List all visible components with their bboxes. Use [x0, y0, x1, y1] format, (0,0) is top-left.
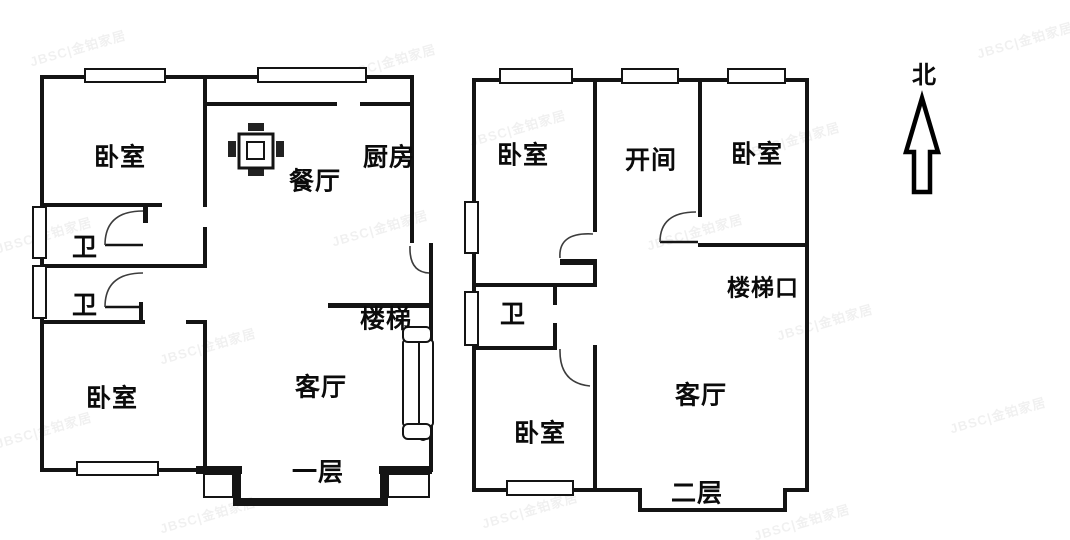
window [258, 68, 366, 82]
floor1-windows [33, 68, 429, 497]
room-label-dining: 餐厅 [289, 170, 341, 195]
floor1-doors [105, 211, 429, 307]
dining-table-icon [228, 123, 284, 176]
floor-label-1f: 一层 [292, 461, 344, 486]
room-label-bath-2: 卫 [72, 294, 98, 319]
room-label-bedroom: 卧室 [497, 144, 549, 169]
floor2-doors [560, 212, 698, 386]
door-arc [105, 211, 143, 245]
door-arc [105, 273, 143, 307]
room-label-bath-1: 卫 [72, 236, 98, 261]
room-label-bath: 卫 [500, 303, 526, 328]
floor-label-2f: 二层 [671, 482, 723, 507]
room-label-bedroom: 卧室 [94, 146, 146, 171]
room-label-bedroom: 卧室 [86, 387, 138, 412]
window [388, 474, 429, 497]
floorplan-image: JBSC|金铂家居 JBSC|金铂家居 JBSC|金铂家居 JBSC|金铂家居 … [0, 0, 1070, 540]
window [507, 481, 573, 495]
floor1-plan [33, 68, 433, 506]
door-arc [560, 234, 593, 258]
room-label-kitchen: 厨房 [363, 146, 415, 171]
window [465, 292, 478, 345]
window [33, 266, 46, 318]
room-label-stair-opening: 楼梯口 [727, 277, 799, 300]
window [77, 462, 158, 475]
door-arc [560, 349, 590, 386]
floor1-walls [40, 75, 433, 506]
sofa-icon [403, 327, 433, 442]
room-label-bedroom: 卧室 [731, 143, 783, 168]
room-label-open-bay: 开间 [625, 149, 677, 174]
window [622, 69, 678, 83]
north-arrow-icon [906, 98, 938, 192]
floorplan-canvas [0, 0, 1070, 540]
window [204, 474, 233, 497]
north-label: 北 [912, 64, 936, 88]
room-label-bedroom: 卧室 [514, 422, 566, 447]
room-label-living: 客厅 [295, 376, 347, 401]
window [85, 69, 165, 82]
room-label-stairs: 楼梯 [360, 308, 412, 333]
window [465, 202, 478, 253]
window [728, 69, 785, 83]
room-label-living: 客厅 [675, 384, 727, 409]
door-arc [410, 246, 429, 273]
window [500, 69, 572, 83]
window [33, 207, 46, 258]
door-arc [660, 212, 696, 242]
